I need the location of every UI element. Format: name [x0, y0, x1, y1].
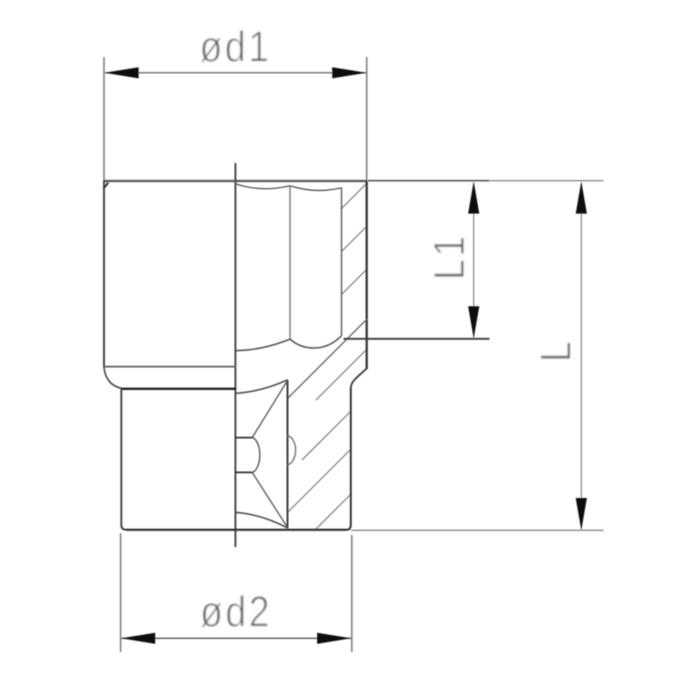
svg-text:ød1: ød1 [199, 21, 271, 71]
svg-text:ød2: ød2 [200, 587, 272, 637]
svg-text:L: L [531, 339, 581, 362]
svg-text:L1: L1 [424, 233, 474, 280]
